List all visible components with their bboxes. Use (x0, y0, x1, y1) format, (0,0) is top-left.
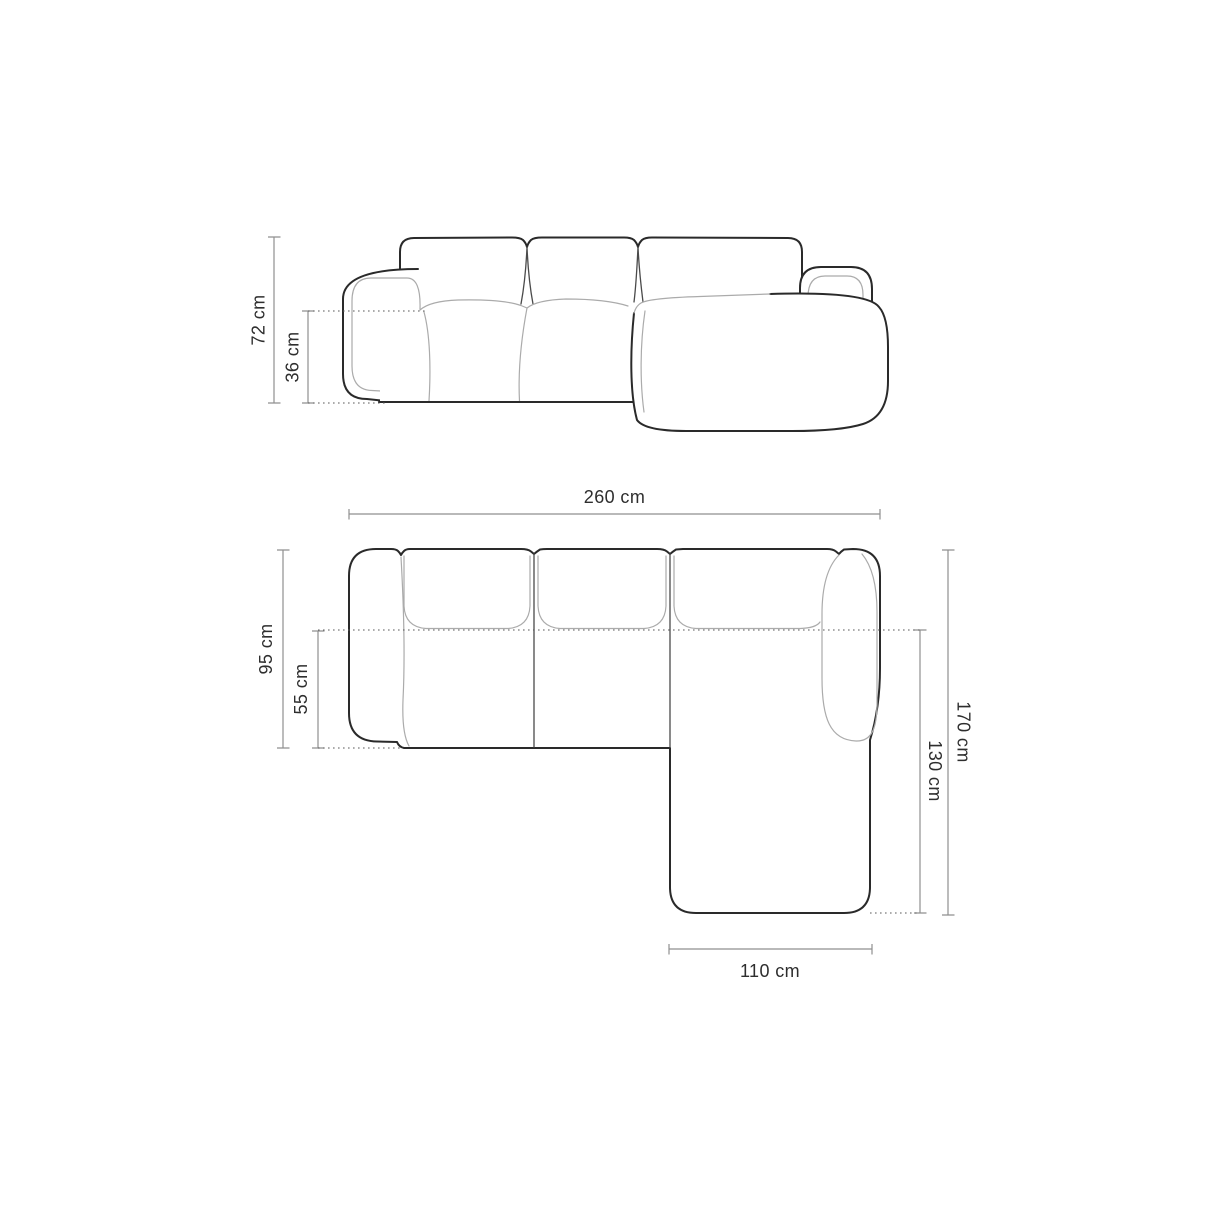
top-dim-seat-depth: 55 cm (291, 631, 325, 748)
top-dim-chaise-width: 110 cm (669, 944, 872, 981)
front-view: 72 cm 36 cm (249, 237, 889, 431)
dim-line-130 (914, 630, 927, 913)
dim-label-72: 72 cm (249, 294, 269, 345)
sofa-dimension-drawing: 72 cm 36 cm 260 cm 95 cm (0, 0, 1214, 1214)
dim-line-36 (302, 311, 315, 403)
dim-label-110: 110 cm (740, 961, 800, 981)
top-dim-total-length: 170 cm (942, 550, 974, 915)
top-body (349, 549, 880, 913)
front-dim-seat-height: 36 cm (283, 311, 315, 403)
dim-label-260: 260 cm (584, 487, 645, 507)
dim-line-72 (268, 237, 281, 403)
diagram-svg: 72 cm 36 cm 260 cm 95 cm (0, 0, 1214, 1214)
dim-line-260 (349, 509, 880, 520)
dim-label-55: 55 cm (291, 663, 311, 714)
top-dim-chaise-length: 130 cm (914, 630, 945, 913)
dim-line-95 (277, 550, 290, 748)
dim-label-95: 95 cm (256, 623, 276, 674)
top-view: 260 cm 95 cm 55 cm 170 cm 130 cm 110 cm (256, 487, 974, 981)
dim-label-170: 170 cm (954, 701, 974, 762)
front-chaise (631, 294, 888, 431)
dim-line-170 (942, 550, 955, 915)
dim-label-36: 36 cm (283, 331, 303, 382)
top-dim-total-depth: 95 cm (256, 550, 290, 748)
front-seat (380, 299, 648, 402)
dim-line-110 (669, 944, 872, 955)
dim-label-130: 130 cm (925, 740, 945, 801)
dim-line-55 (312, 631, 325, 748)
top-dim-total-width: 260 cm (349, 487, 880, 520)
front-dim-total-height: 72 cm (249, 237, 281, 403)
